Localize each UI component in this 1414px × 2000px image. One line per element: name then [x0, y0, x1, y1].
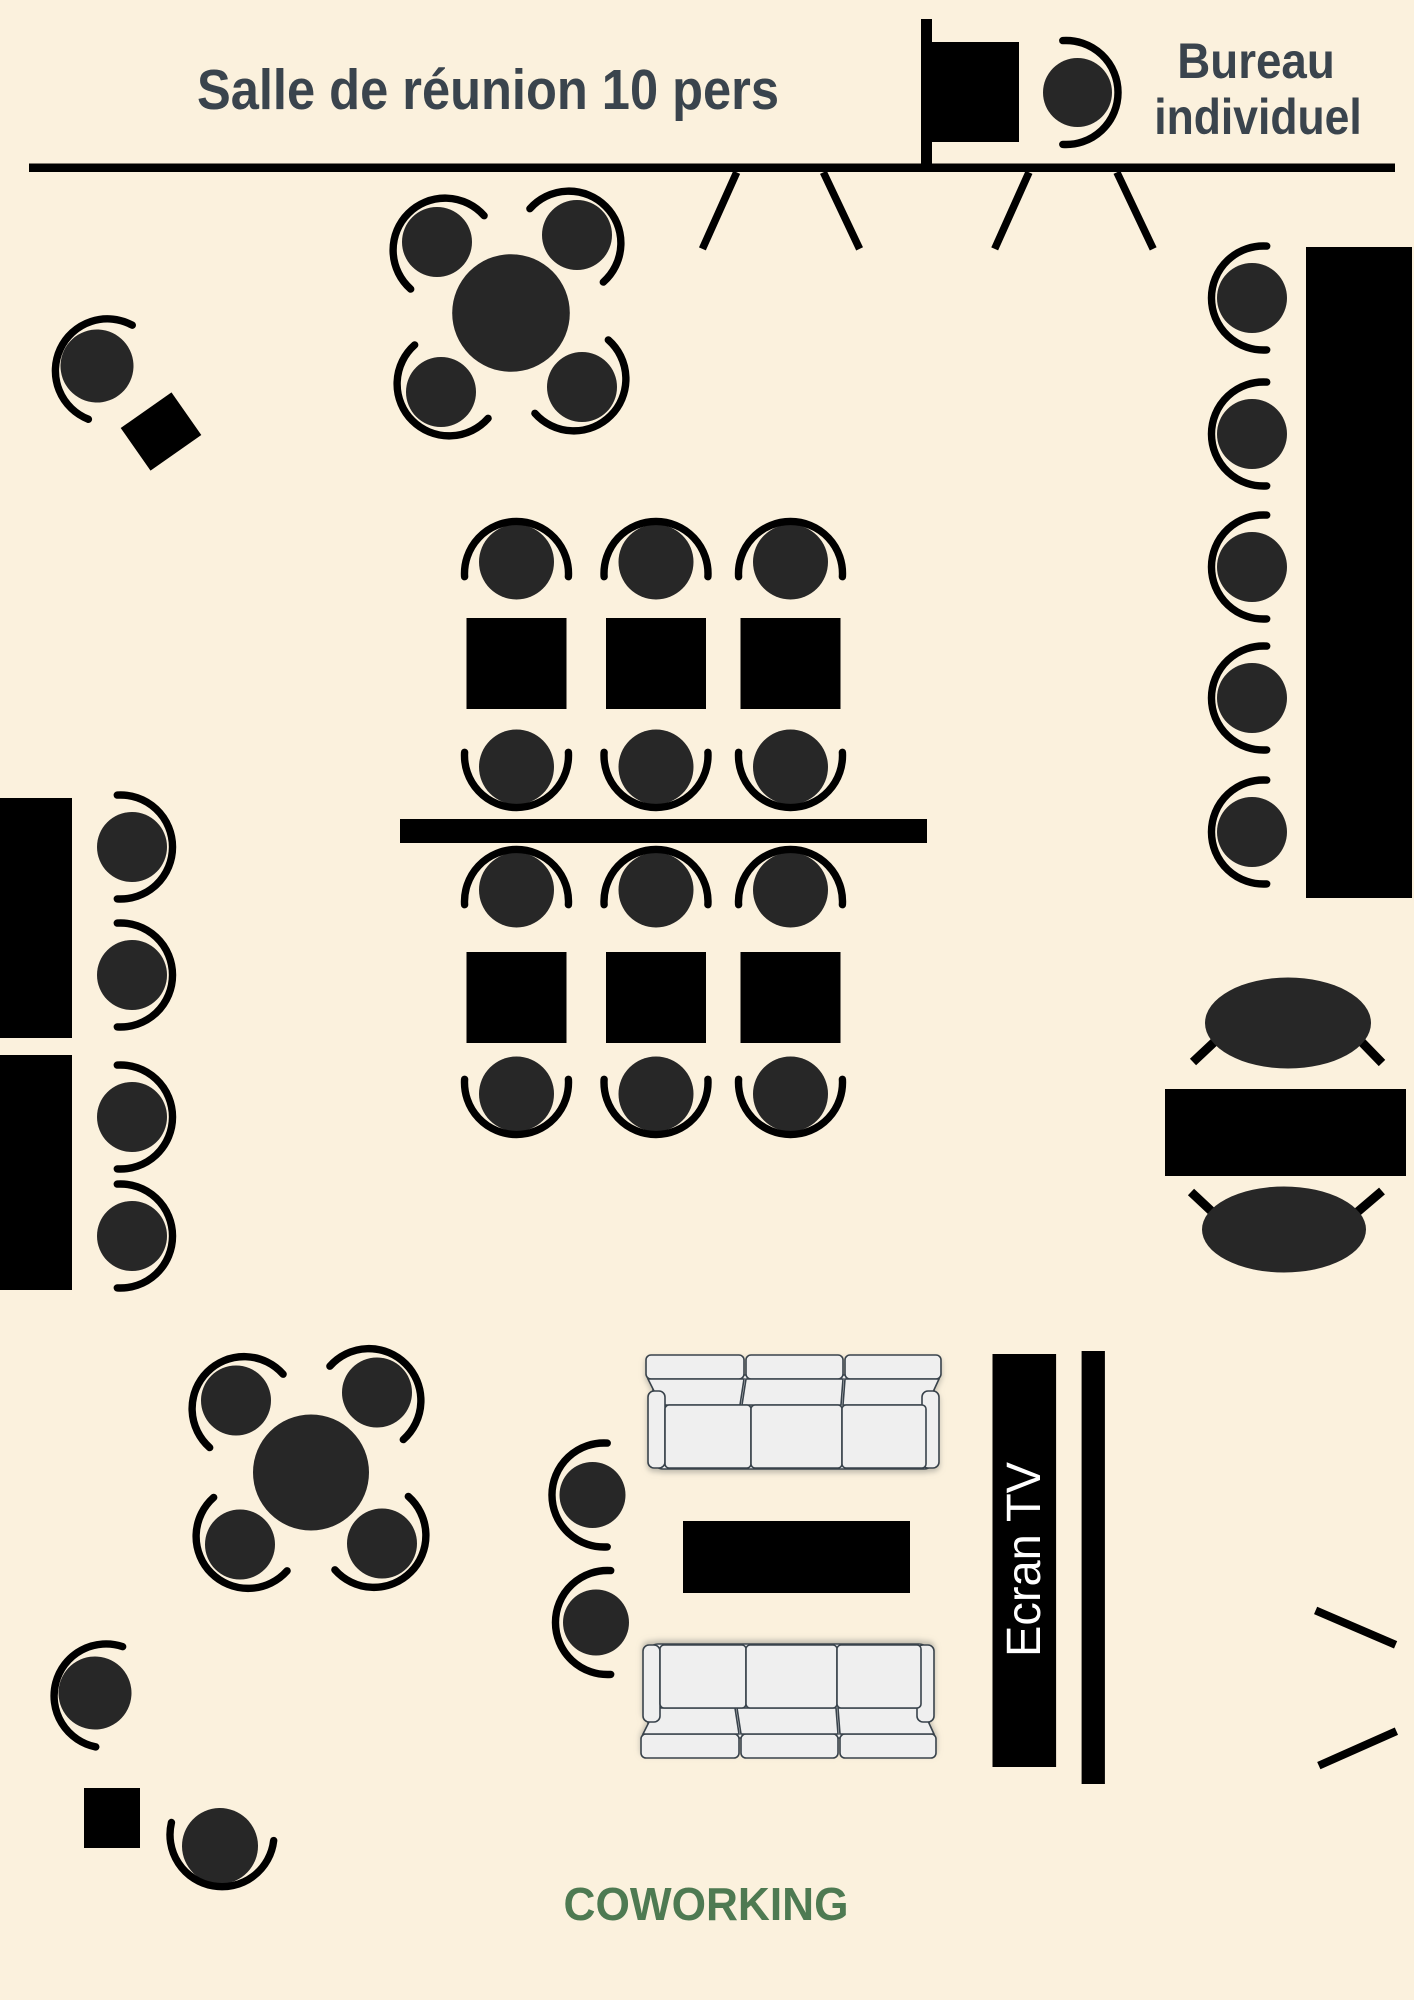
- svg-text:individuel: individuel: [1154, 89, 1362, 145]
- svg-text:Bureau: Bureau: [1177, 33, 1335, 89]
- svg-text:COWORKING: COWORKING: [564, 1878, 849, 1930]
- svg-text:Ecran TV: Ecran TV: [998, 1462, 1051, 1657]
- svg-text:Salle de réunion 10 pers: Salle de réunion 10 pers: [197, 58, 779, 122]
